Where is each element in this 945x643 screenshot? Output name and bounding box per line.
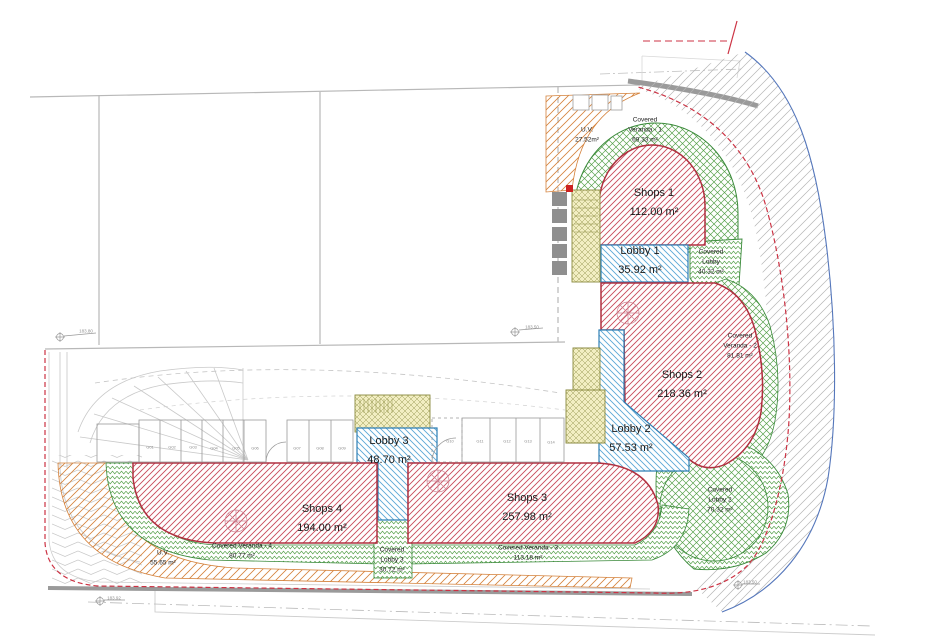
- zone-label-lobby-2: Lobby 2 57.53 m²: [609, 420, 652, 459]
- zone-label-lobby-3: Lobby 3 48.70 m²: [367, 432, 410, 471]
- zone-label-covered-lobby-1: Covered Lobby 40.32 m²: [698, 247, 724, 276]
- zone-label-lobby-1: Lobby 1 35.92 m²: [618, 242, 661, 281]
- survey-marker-label: 183.80: [79, 329, 93, 334]
- parking-stall-label: G03: [189, 445, 197, 450]
- zone-label-covered-lobby-2: Covered Lobby 2 70.32 m²: [707, 485, 733, 514]
- parking-stall-label: G01: [146, 445, 154, 450]
- parking-stall-label: G12: [503, 439, 511, 444]
- zone-label-uv-bottom: U.V. 55.65 m²: [150, 548, 176, 568]
- parking-stall-label: G11: [476, 439, 483, 444]
- zone-label-covered-veranda-4: Covered Veranda - 4 80.77 m²: [212, 541, 272, 561]
- zone-label-covered-veranda-1: Covered Veranda - 1 69.33 m²: [628, 115, 662, 144]
- parking-stall-label: G08: [316, 446, 324, 451]
- zone-label-covered-lobby-3: Covered Lobby 3 30.72 m²: [379, 545, 405, 574]
- survey-marker-label: 183.92: [107, 596, 121, 601]
- zone-label-covered-veranda-2: Covered Veranda - 2 81.81 m²: [723, 331, 757, 360]
- zone-label-shops-2: Shops 2 218.36 m²: [657, 366, 707, 405]
- parking-stall-label: G14: [547, 440, 555, 445]
- survey-marker-label: 183.50: [743, 580, 757, 585]
- site-plan-drawing: [0, 0, 945, 643]
- parking-stall-label: G10: [446, 439, 454, 444]
- parking-stall-label: G05: [232, 446, 240, 451]
- parking-stall-label: G13: [524, 439, 532, 444]
- zone-label-shops-1: Shops 1 112.00 m²: [630, 184, 679, 223]
- parking-stall-label: G09: [338, 446, 346, 451]
- parking-stall-label: G07: [293, 446, 301, 451]
- parking-stall-label: G04: [210, 446, 218, 451]
- zone-label-shops-3: Shops 3 257.98 m²: [502, 489, 552, 528]
- parking-stall-label: G02: [168, 445, 176, 450]
- site-plan: Shops 1 112.00 m² Lobby 1 35.92 m² Shops…: [0, 0, 945, 643]
- zone-label-uv-top: U.V. 27.52m²: [575, 125, 599, 145]
- zone-label-covered-veranda-3: Covered Veranda - 3 113.18 m²: [498, 543, 558, 563]
- parking-stall-label: G06: [251, 446, 259, 451]
- survey-marker-label: 183.50: [525, 325, 539, 330]
- zone-label-shops-4: Shops 4 194.00 m²: [297, 500, 347, 539]
